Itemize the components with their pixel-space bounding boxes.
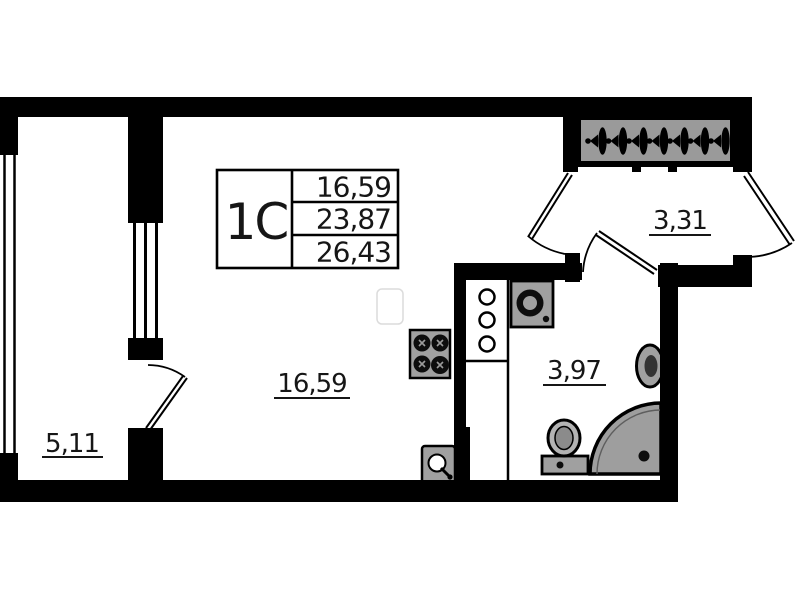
washing-machine-icon [511,281,553,327]
unit-area-value-1: 16,59 [316,171,391,204]
wall-bathroom-right [660,263,678,502]
wall-kitchen-bottom [454,427,470,502]
wall-left-top [0,117,18,155]
kitchen-sink-icon [422,446,455,484]
living-room-door [528,173,572,254]
balcony-door [146,365,187,430]
balcony-area-label: 5,11 [45,429,99,459]
wall-balcony-bottom [128,428,163,482]
shower-icon [590,403,661,474]
watermark [377,289,403,324]
wall-top [0,97,752,117]
floor-plan: 5,11 16,59 3,97 3,31 1С 16,59 23,87 26,4… [0,0,799,600]
unit-info-box: 1С 16,59 23,87 26,43 [217,170,398,269]
washbasin-icon [637,345,664,387]
vent-shaft-icon [464,275,508,485]
stove-icon [410,330,450,378]
toilet-icon [542,420,588,474]
wall-balcony-mid [128,338,163,360]
unit-area-value-3: 26,43 [316,236,391,269]
fixtures [410,275,664,485]
wall-bottom [0,480,678,502]
floor-plan-canvas: 5,11 16,59 3,97 3,31 1С 16,59 23,87 26,4… [0,0,799,600]
entrance-door [744,172,794,257]
unit-area-value-2: 23,87 [316,203,391,236]
wall-door-stub [565,253,580,282]
wardrobe [576,119,735,173]
balcony-inner-window [135,223,157,338]
bathroom-door [583,231,657,274]
wall-room-wardrobe [563,97,578,172]
bathroom-area-label: 3,97 [547,356,601,386]
hallway-area-label: 3,31 [653,206,707,236]
living-room-area-label: 16,59 [277,369,346,399]
balcony-outer-window [5,155,15,453]
unit-type-label: 1С [225,193,288,251]
wall-top-right-block [733,97,752,172]
wall-bathroom-top [454,263,582,280]
wall-hallway-step [733,255,752,287]
wall-balcony-top [128,117,163,223]
